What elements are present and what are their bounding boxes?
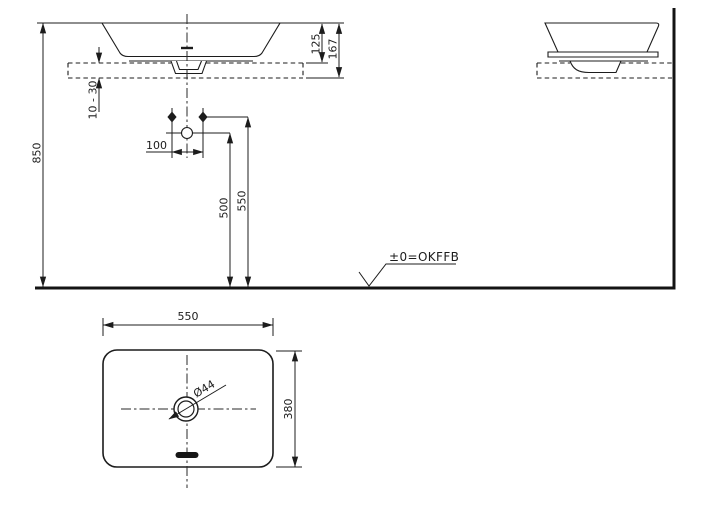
- drain-outlet-point: [182, 128, 193, 139]
- fixing-point-icon: [167, 112, 176, 123]
- side-view: [537, 23, 672, 78]
- dim-label-380: 380: [282, 399, 295, 420]
- dim-fixing-height-550: 550: [236, 118, 249, 287]
- basin-side-flange: [548, 52, 658, 57]
- dim-label-167: 167: [327, 39, 340, 60]
- dim-depth-380: 380: [276, 351, 302, 467]
- dim-label-850: 850: [31, 143, 44, 164]
- dim-hole-spacing-100: 100: [146, 139, 203, 152]
- front-view: 850 125 167 10 - 30 100 500: [31, 14, 345, 287]
- countertop-section-side: [537, 63, 672, 78]
- dim-label-100: 100: [146, 139, 167, 152]
- basin-front-drain: [171, 61, 207, 74]
- dim-label-550-width: 550: [178, 310, 199, 323]
- basin-front-outline: [102, 23, 280, 57]
- dim-counter-thickness: 10 - 30: [87, 47, 100, 119]
- dim-rim-125: 125: [306, 24, 328, 63]
- dim-label-550-vertical: 550: [236, 191, 249, 212]
- dim-label-10-30: 10 - 30: [87, 81, 100, 120]
- top-view: Ø44 550 380: [103, 310, 302, 488]
- dim-drain-height-500: 500: [218, 134, 231, 287]
- overflow-slot: [176, 452, 199, 458]
- dim-height-850: 850: [31, 24, 44, 287]
- floor-level-callout: ±0=OKFFB: [359, 250, 459, 286]
- basin-side-outline: [545, 23, 659, 52]
- dim-width-550: 550: [103, 310, 273, 336]
- basin-side-drain: [570, 61, 621, 73]
- floor-level-label: ±0=OKFFB: [389, 250, 459, 264]
- drawing-canvas: 850 125 167 10 - 30 100 500: [0, 0, 725, 518]
- dim-label-125: 125: [310, 34, 323, 55]
- level-symbol: [359, 264, 456, 286]
- dim-label-500: 500: [218, 198, 231, 219]
- technical-drawing: 850 125 167 10 - 30 100 500: [0, 0, 725, 518]
